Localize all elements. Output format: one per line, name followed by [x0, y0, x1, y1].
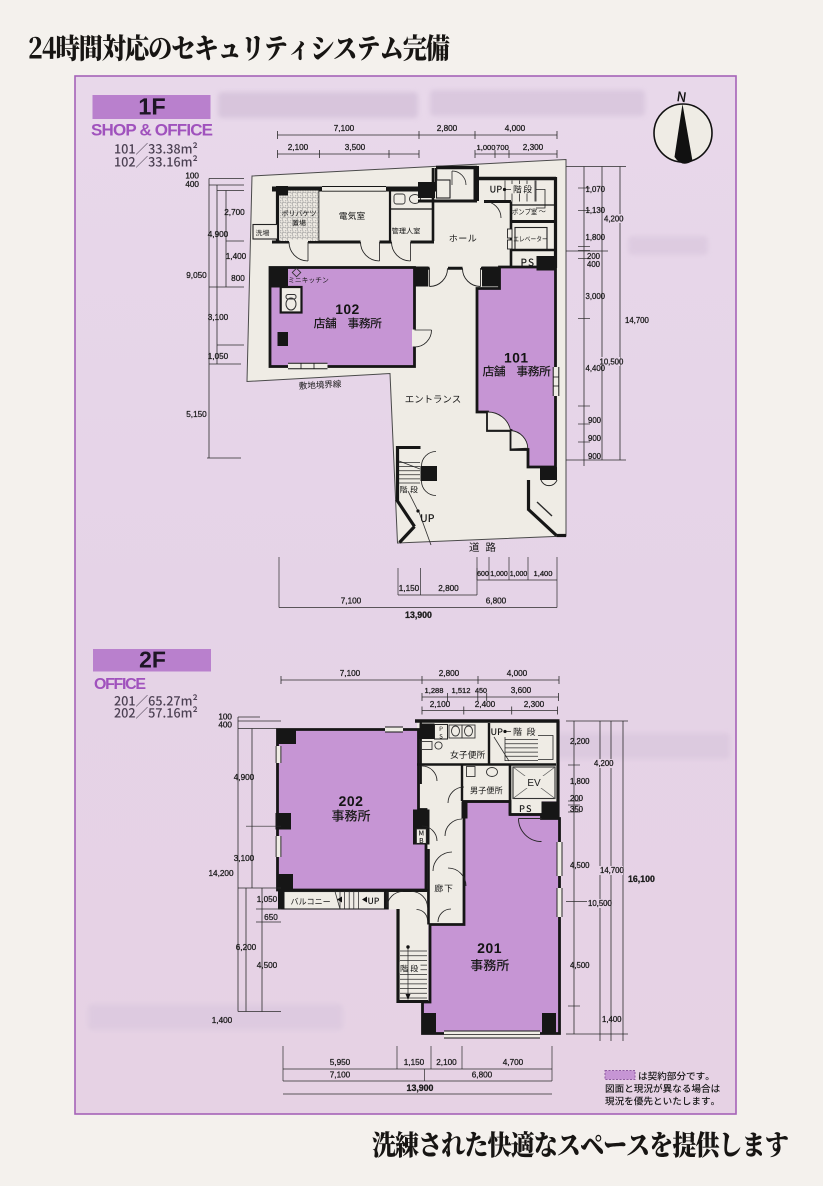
svg-text:9,050: 9,050	[186, 271, 207, 280]
svg-text:7,100: 7,100	[340, 669, 361, 678]
svg-text:10,500: 10,500	[600, 358, 625, 367]
svg-text:1,288: 1,288	[424, 686, 443, 695]
svg-text:2,700: 2,700	[224, 208, 245, 217]
svg-text:4,500: 4,500	[570, 961, 590, 970]
svg-text:1,000: 1,000	[510, 571, 528, 578]
svg-text:2,300: 2,300	[524, 700, 545, 709]
svg-text:900: 900	[588, 434, 602, 443]
svg-text:3,600: 3,600	[511, 686, 532, 695]
svg-text:13,900: 13,900	[405, 610, 432, 620]
svg-text:1,150: 1,150	[404, 1058, 425, 1067]
svg-text:6,800: 6,800	[486, 597, 507, 606]
svg-text:1,400: 1,400	[602, 1015, 622, 1024]
svg-text:400: 400	[185, 180, 199, 189]
svg-text:EV: EV	[527, 778, 541, 789]
svg-text:4,000: 4,000	[505, 124, 526, 133]
svg-text:4,000: 4,000	[507, 669, 528, 678]
svg-text:2,200: 2,200	[570, 737, 590, 746]
svg-text:4,500: 4,500	[570, 861, 590, 870]
svg-text:200: 200	[570, 794, 584, 803]
svg-text:1,130: 1,130	[586, 206, 606, 215]
svg-text:2,300: 2,300	[523, 143, 544, 152]
svg-text:1,800: 1,800	[570, 777, 590, 786]
svg-text:2,800: 2,800	[438, 584, 459, 593]
svg-text:1,800: 1,800	[586, 233, 606, 242]
svg-text:2,100: 2,100	[288, 143, 309, 152]
svg-text:900: 900	[588, 452, 602, 461]
svg-text:4,700: 4,700	[503, 1058, 524, 1067]
svg-text:7,100: 7,100	[330, 1071, 351, 1080]
svg-text:5,150: 5,150	[186, 410, 207, 419]
svg-text:4,500: 4,500	[257, 961, 278, 970]
svg-text:1,512: 1,512	[451, 686, 470, 695]
svg-text:1,400: 1,400	[212, 1016, 233, 1025]
svg-text:3,100: 3,100	[234, 854, 255, 863]
svg-text:SHOP & OFFICE: SHOP & OFFICE	[91, 121, 213, 140]
svg-text:2,400: 2,400	[475, 700, 496, 709]
svg-text:1,150: 1,150	[399, 584, 420, 593]
svg-text:350: 350	[570, 805, 584, 814]
svg-text:1,000: 1,000	[476, 143, 495, 152]
svg-text:1,070: 1,070	[586, 185, 606, 194]
svg-text:1,050: 1,050	[257, 895, 278, 904]
svg-text:400: 400	[218, 721, 232, 730]
svg-text:6,800: 6,800	[472, 1071, 493, 1080]
svg-text:2,800: 2,800	[437, 124, 458, 133]
svg-text:6,200: 6,200	[236, 943, 257, 952]
svg-text:450: 450	[475, 686, 487, 695]
svg-text:1,000: 1,000	[490, 571, 508, 578]
svg-text:4,900: 4,900	[234, 773, 255, 782]
svg-text:5,950: 5,950	[330, 1058, 351, 1067]
svg-text:800: 800	[231, 274, 245, 283]
svg-text:14,700: 14,700	[625, 316, 650, 325]
svg-text:OFFICE: OFFICE	[94, 676, 146, 693]
svg-text:4,200: 4,200	[604, 215, 624, 224]
svg-text:3,500: 3,500	[345, 143, 366, 152]
svg-text:650: 650	[264, 913, 278, 922]
svg-text:400: 400	[587, 260, 601, 269]
svg-text:16,100: 16,100	[628, 874, 655, 884]
svg-text:900: 900	[588, 416, 602, 425]
svg-text:4,900: 4,900	[208, 230, 229, 239]
svg-text:1,400: 1,400	[226, 252, 247, 261]
svg-text:7,100: 7,100	[341, 597, 362, 606]
svg-text:7,100: 7,100	[334, 124, 355, 133]
svg-text:3,000: 3,000	[586, 292, 606, 301]
svg-text:13,900: 13,900	[407, 1083, 434, 1093]
svg-text:2,800: 2,800	[439, 669, 460, 678]
svg-text:10,500: 10,500	[588, 899, 613, 908]
svg-text:1,400: 1,400	[533, 569, 552, 578]
svg-text:14,200: 14,200	[208, 869, 233, 878]
svg-text:700: 700	[496, 143, 509, 152]
svg-text:1,050: 1,050	[208, 352, 229, 361]
svg-text:600: 600	[477, 571, 489, 578]
svg-text:2,100: 2,100	[430, 700, 451, 709]
svg-text:3,100: 3,100	[208, 313, 229, 322]
svg-text:14,700: 14,700	[600, 866, 625, 875]
svg-text:4,200: 4,200	[594, 759, 614, 768]
svg-text:2,100: 2,100	[436, 1058, 457, 1067]
